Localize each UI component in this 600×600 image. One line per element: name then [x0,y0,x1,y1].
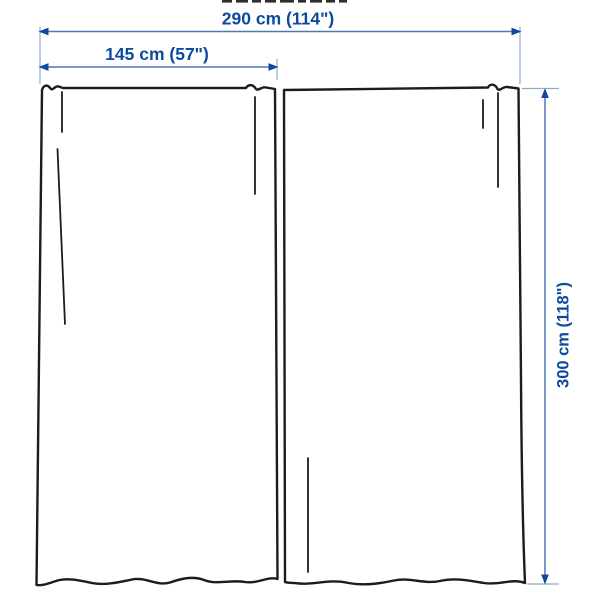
label-total-width: 290 cm (114") [222,9,334,29]
dimension-total-width: 290 cm (114") [39,9,522,36]
curtain-panel-left [37,85,278,585]
label-height: 300 cm (118") [555,282,573,388]
dimension-panel-width: 145 cm (57") [39,44,279,71]
arrowhead-down-icon [541,575,549,585]
cropped-text-fragment [222,0,347,3]
arrowhead-up-icon [541,88,549,98]
dimension-height: 300 cm (118") [541,88,572,585]
diagram-svg: 290 cm (114") 145 cm (57") 300 cm (118") [0,0,600,600]
dimension-diagram: 290 cm (114") 145 cm (57") 300 cm (118") [0,0,600,600]
curtain-panel-right [284,85,525,585]
label-panel-width: 145 cm (57") [105,44,209,64]
